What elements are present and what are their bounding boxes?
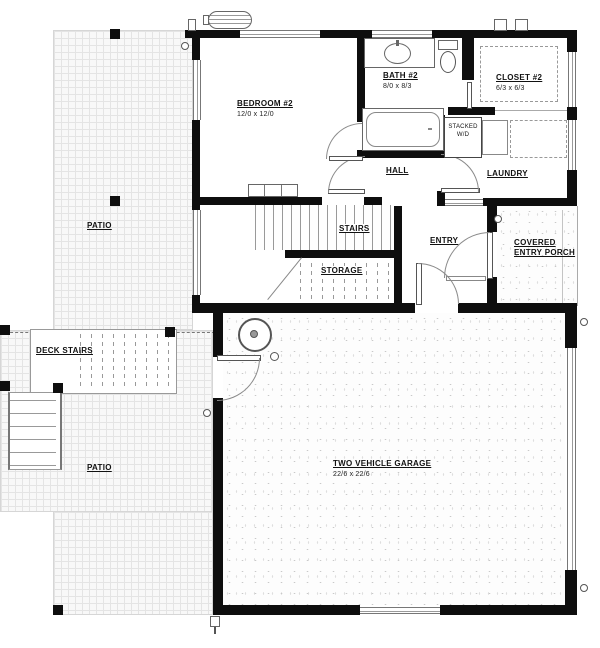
window [568, 52, 576, 107]
room-label-porch: COVERED ENTRY PORCH [514, 238, 580, 258]
floor-plan: PATIO BEDROOM #2 12/0 x 12/0 BATH #2 8/0… [0, 0, 600, 648]
window [240, 30, 320, 38]
patio-top-surface [53, 30, 193, 330]
deck-post [0, 381, 10, 391]
room-label-patio-bottom: PATIO [87, 463, 112, 472]
dims-bath2: 8/0 x 8/3 [383, 83, 412, 90]
wall-segment [213, 398, 223, 605]
ac-unit-icon [208, 11, 252, 29]
dims-closet2: 6/3 x 6/3 [496, 85, 525, 92]
lower-stairs-treads [10, 394, 56, 466]
window [568, 120, 576, 170]
wall-segment [462, 38, 474, 80]
toilet-tank-icon [438, 40, 458, 50]
floor-drain-icon [270, 352, 279, 361]
hose-bib-icon [181, 42, 189, 50]
hose-bib-icon [203, 409, 211, 417]
door-swing-arc [441, 154, 479, 192]
bathtub-drain [428, 128, 432, 130]
door-swing-arc [326, 123, 362, 159]
label-stacked-wd-line1: STACKED [444, 124, 482, 130]
wall-segment [458, 303, 577, 313]
wall-segment [565, 313, 577, 348]
window [372, 30, 432, 38]
deck-stairs-treads [80, 331, 172, 390]
laundry-cabinets [510, 120, 567, 158]
deck-post [53, 605, 63, 615]
door-swing-arc [328, 156, 365, 193]
vent-icon [515, 19, 528, 31]
wall-segment [567, 36, 577, 52]
wall-segment [567, 107, 577, 120]
stairs-break-line [267, 257, 302, 300]
window [360, 607, 440, 614]
wall-segment [364, 197, 382, 205]
deck-post [0, 325, 10, 335]
dims-bedroom2: 12/0 x 12/0 [237, 111, 274, 118]
wall-segment [213, 303, 415, 313]
wall-segment [440, 605, 577, 615]
room-label-bath2: BATH #2 [383, 71, 418, 80]
room-label-garage: TWO VEHICLE GARAGE [333, 459, 431, 468]
room-label-entry: ENTRY [430, 236, 458, 245]
wall-segment [487, 277, 497, 303]
room-label-laundry: LAUNDRY [487, 169, 528, 178]
stairs-treads [255, 205, 398, 250]
room-label-stairs: STAIRS [337, 224, 372, 233]
door-leaf [467, 82, 472, 109]
room-label-storage: STORAGE [319, 266, 365, 275]
wall-segment [565, 570, 577, 605]
wall-segment [357, 150, 445, 158]
wall-segment [483, 198, 577, 206]
vent-icon [494, 19, 507, 31]
deck-post [165, 327, 175, 337]
window [445, 199, 483, 206]
toilet-bowl-icon [440, 51, 456, 73]
gas-meter-stem [214, 627, 216, 634]
wall-segment [213, 313, 223, 357]
ac-unit-cap [203, 15, 209, 25]
dims-garage: 22/6 x 22/6 [333, 471, 370, 478]
gas-meter-icon [210, 616, 220, 627]
hose-bib-icon [580, 584, 588, 592]
room-label-hall: HALL [386, 166, 409, 175]
window [193, 60, 201, 120]
label-stacked-wd-line2: W/D [444, 132, 482, 138]
laundry-counter [482, 120, 508, 155]
sink-icon [384, 43, 411, 64]
room-label-deck-stairs: DECK STAIRS [36, 346, 93, 355]
room-label-closet2: CLOSET #2 [496, 73, 542, 82]
wall-segment [432, 30, 577, 38]
wall-segment [192, 36, 200, 60]
wall-segment [192, 197, 322, 205]
deck-post [53, 383, 63, 393]
room-label-bedroom2: BEDROOM #2 [237, 99, 293, 108]
window [193, 210, 201, 295]
sink-faucet-icon [396, 40, 399, 46]
bedroom-bench [248, 184, 298, 197]
closet-bottom-line [495, 110, 567, 111]
deck-post [110, 29, 120, 39]
patio-bottom-surface-2 [53, 511, 213, 615]
wall-segment [437, 198, 445, 206]
deck-post [110, 196, 120, 206]
wall-segment [320, 30, 372, 38]
room-label-patio-top: PATIO [87, 221, 112, 230]
garage-door [567, 348, 576, 570]
porch-light-icon [494, 215, 502, 223]
water-heater-vent [250, 330, 258, 338]
wall-segment [213, 605, 360, 615]
hose-bib-icon [580, 318, 588, 326]
utility-box-icon [188, 19, 196, 31]
